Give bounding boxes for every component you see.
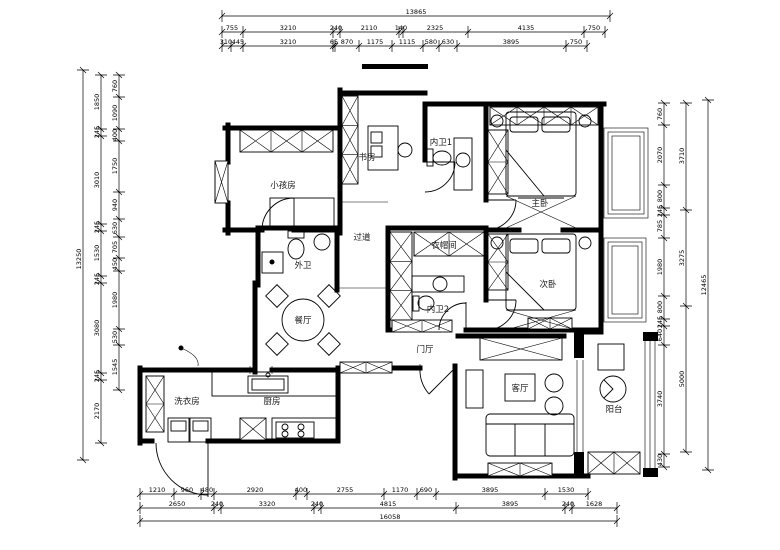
dim-bottom-row1: 121096048029204002755117069038951530 (149, 486, 575, 494)
dimension-value: 1850 (93, 94, 101, 111)
dimension-value: 1530 (558, 486, 575, 494)
dimension-value: 65 (330, 38, 338, 46)
dimension-value: 580 (425, 38, 437, 46)
room-label-laundry: 洗衣房 (174, 396, 200, 407)
dimension-value: 13250 (75, 249, 83, 270)
dimension-value: 1170 (392, 486, 409, 494)
dim-top-row1: 7553210240211014023254135750 (226, 24, 600, 32)
dimension-value: 750 (588, 24, 600, 32)
dimension-value: 5000 (678, 371, 686, 388)
dimension-value: 2170 (93, 403, 101, 420)
dimension-value: 245 (93, 370, 101, 382)
dimension-value: 3275 (678, 250, 686, 267)
dimension-value: 1980 (111, 292, 119, 309)
room-label-study: 书房 (358, 152, 375, 163)
kids-bed (270, 198, 334, 228)
dimension-value: 400 (111, 129, 119, 141)
dimension-chain-top: 13865 7553210240211014023254135750 31044… (219, 8, 613, 69)
dimension-value: 750 (570, 38, 582, 46)
dimension-value: 240 (330, 24, 342, 32)
dimension-value: 3210 (280, 38, 297, 46)
dimension-value: 2070 (656, 147, 664, 164)
dimension-value: 245 (656, 205, 664, 217)
dimension-value: 310 (220, 38, 232, 46)
dimension-value: 530 (111, 331, 119, 343)
door-second (486, 300, 516, 330)
room-label-bath2: 内卫2 (427, 304, 449, 315)
dimension-value: 240 (311, 500, 323, 508)
dimension-value: 760 (111, 80, 119, 92)
master-bed (491, 112, 591, 228)
dimension-value: 800 (656, 190, 664, 202)
dimension-value: 2755 (337, 486, 354, 494)
dimension-value: 240 (562, 500, 574, 508)
dimension-value: 4815 (380, 500, 397, 508)
stools (545, 374, 563, 415)
door-bath1 (425, 162, 455, 192)
room-label-kids: 小孩房 (270, 180, 296, 191)
dimension-value: 3710 (678, 148, 686, 165)
room-label-wardrobe: 衣帽间 (431, 240, 457, 251)
dimension-value: 2110 (361, 24, 378, 32)
dimension-value: 785 (656, 220, 664, 232)
dimension-value: 430 (656, 454, 664, 466)
scale-bar (362, 64, 428, 69)
dimension-value: 3010 (93, 172, 101, 189)
dimension-value: 245 (93, 221, 101, 233)
room-label-living: 客厅 (511, 383, 529, 394)
dimension-value: 3320 (259, 500, 276, 508)
door-kids (262, 198, 294, 230)
dimension-value: 12465 (700, 275, 708, 296)
side-table (466, 370, 483, 408)
dim-bottom-total: 16058 (380, 513, 401, 521)
balcony-furniture (598, 344, 626, 402)
dimension-value: 800 (656, 301, 664, 313)
dimension-value: 940 (111, 199, 119, 211)
dimension-value: 3895 (502, 500, 519, 508)
dimension-chain-bottom: 121096048029204002755117069038951530 265… (137, 486, 620, 527)
room-label-bath1: 内卫1 (430, 137, 452, 148)
dimension-value: 3210 (280, 24, 297, 32)
dimension-value: 870 (341, 38, 353, 46)
dimension-value: 1090 (111, 105, 119, 122)
dimension-value: 755 (226, 24, 238, 32)
sofa (486, 414, 574, 456)
dim-right-row2: 371032755000 (678, 148, 686, 388)
dim-right-row1: 760207080024578519808002456403740430 (656, 108, 664, 466)
study-desk (368, 126, 412, 170)
dim-left-row1: 18502453010245153024530802452170 (93, 94, 101, 420)
dimension-value: 3740 (656, 391, 664, 408)
balcony-glazing (577, 334, 658, 472)
dimension-value: 690 (420, 486, 432, 494)
dimension-value: 1530 (93, 245, 101, 262)
dimension-value: 1175 (367, 38, 384, 46)
dimension-value: 1115 (399, 38, 416, 46)
dimension-value: 2650 (169, 500, 186, 508)
dimension-value: 13865 (406, 8, 427, 16)
dimension-value: 450 (111, 258, 119, 270)
dim-left-row2: 7601090400175094063070545019805301545 (111, 80, 119, 375)
dim-bottom-row2: 26502403320240481538952401628 (169, 500, 603, 508)
dimension-value: 3895 (482, 486, 499, 494)
dimension-value: 480 (201, 486, 213, 494)
dimension-value: 1980 (656, 259, 664, 276)
dim-left-total: 13250 (75, 249, 83, 270)
bay-window-second (604, 238, 646, 322)
dimension-value: 2920 (247, 486, 264, 494)
dimension-value: 1545 (111, 359, 119, 376)
dimension-value: 630 (111, 222, 119, 234)
dim-top-row2: 310445321065870117511155806303895750 (220, 38, 582, 46)
bay-window-master (604, 128, 648, 218)
room-label-corridor: 过道 (353, 232, 371, 243)
dimension-value: 245 (93, 126, 101, 138)
dimension-value: 3080 (93, 320, 101, 337)
dimension-value: 705 (111, 241, 119, 253)
dimension-value: 3895 (503, 38, 520, 46)
dimension-value: 245 (93, 273, 101, 285)
doors (156, 162, 516, 497)
dim-top-total: 13865 (406, 8, 427, 16)
dimension-value: 1750 (111, 158, 119, 175)
dimension-value: 140 (395, 24, 407, 32)
dimension-value: 4135 (518, 24, 535, 32)
door-main-entry (420, 368, 455, 394)
laundry-fixtures (168, 346, 211, 443)
dimension-value: 445 (232, 38, 244, 46)
dimension-chain-left: 13250 18502453010245153024530802452170 7… (75, 67, 125, 463)
room-label-dining: 餐厅 (294, 316, 312, 326)
room-label-master: 主卧 (531, 198, 549, 209)
dimension-value: 760 (656, 108, 664, 120)
dimension-value: 400 (295, 486, 307, 494)
dimension-value: 16058 (380, 513, 401, 521)
dimension-chain-right: 760207080024578519808002456403740430 371… (656, 97, 714, 473)
dimension-value: 1210 (149, 486, 166, 494)
room-label-bath-outer: 外卫 (294, 260, 312, 271)
dimension-value: 1628 (586, 500, 603, 508)
room-label-entry: 门厅 (416, 344, 434, 355)
floor-plan-canvas: 13865 7553210240211014023254135750 31044… (0, 0, 780, 550)
hatch-boxes (146, 96, 640, 476)
dimension-value: 245 (656, 316, 664, 328)
dim-right-total: 12465 (700, 275, 708, 296)
dimension-value: 630 (442, 38, 454, 46)
room-label-second: 次卧 (539, 279, 557, 290)
dimension-value: 240 (211, 500, 223, 508)
room-label-kitchen: 厨房 (263, 396, 280, 407)
dimension-value: 2325 (427, 24, 444, 32)
room-label-balcony: 阳台 (605, 404, 622, 415)
